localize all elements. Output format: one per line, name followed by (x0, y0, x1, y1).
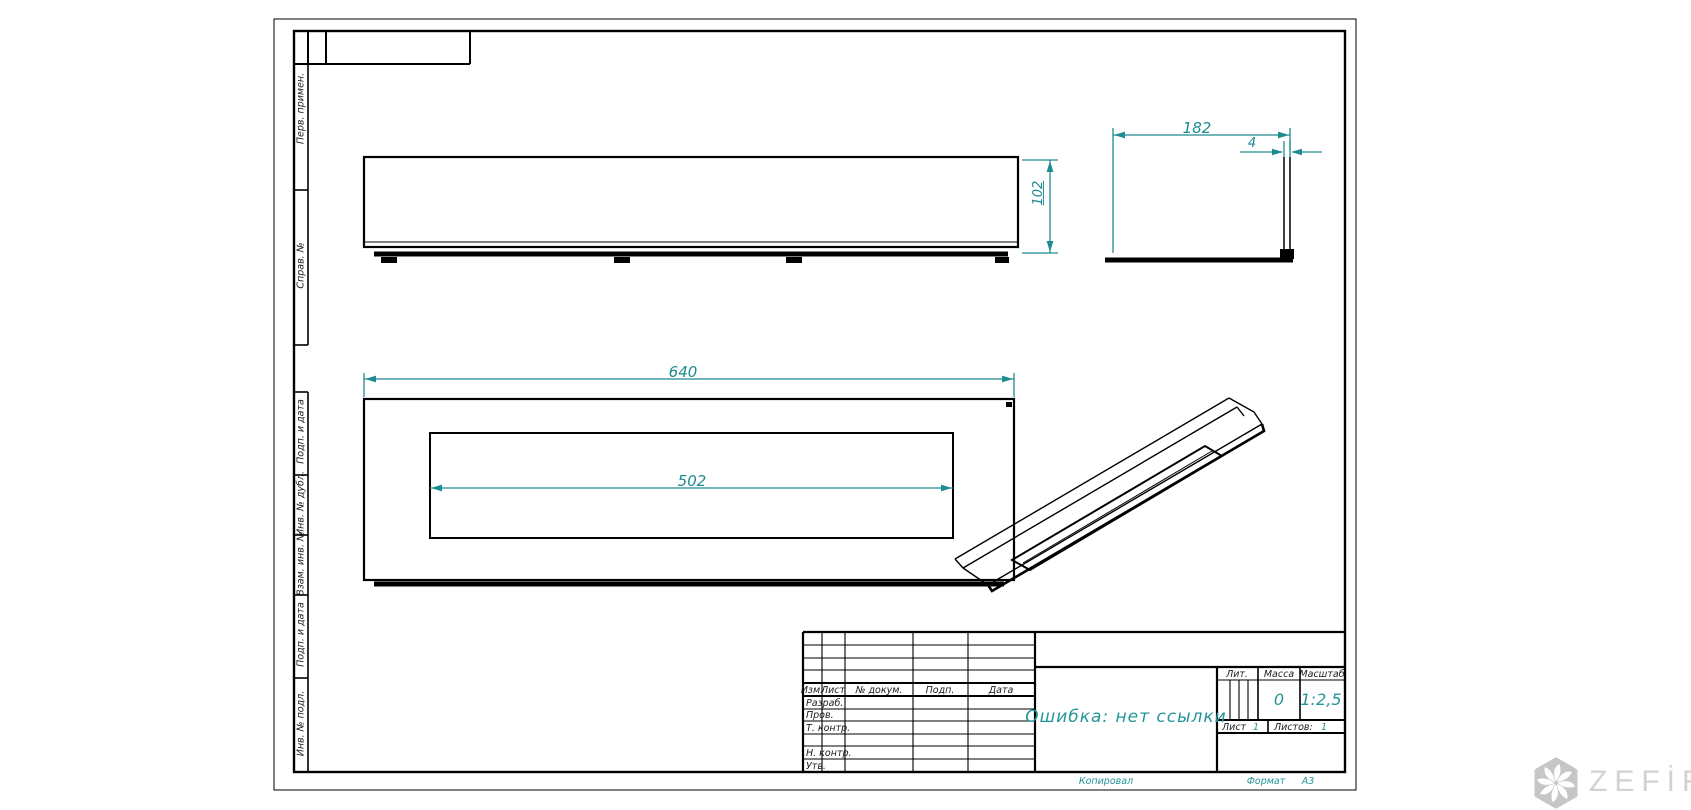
dim-text-502: 502 (678, 472, 707, 490)
tb-col-data: Дата (989, 685, 1014, 696)
format-value: А3 (1302, 776, 1315, 787)
tb-mass-label: Масса (1264, 669, 1294, 680)
format-label: Формат (1247, 776, 1286, 787)
tb-sheets-value: 1 (1321, 722, 1327, 733)
tb-lit-label: Лит. (1226, 669, 1248, 680)
dim-text-102: 102 (1031, 181, 1046, 206)
dim-text-4: 4 (1248, 136, 1256, 151)
tb-sheets-label: Листов: (1274, 722, 1313, 733)
tb-scale-value: 1:2,5 (1300, 690, 1341, 709)
drawing-frame (294, 31, 1345, 772)
tb-sheet-value: 1 (1253, 722, 1259, 733)
side-view (1105, 157, 1294, 260)
tb-row-tkontr: Т. контр. (806, 723, 850, 734)
document-name-error-text: Ошибка: нет ссылки (1025, 707, 1226, 727)
dimension-height-102 (1022, 160, 1058, 253)
corner-stamp-block (294, 31, 470, 64)
tb-col-izm: Изм. (801, 685, 823, 696)
margin-label-inv-podl: Инв. № подл. (296, 644, 307, 804)
drawing-sheet: Перв. примен. Справ. № Подп. и дата Инв.… (0, 0, 1691, 810)
dim-text-182: 182 (1183, 119, 1212, 137)
tb-row-prov: Пров. (806, 710, 834, 721)
tb-sheet-label: Лист (1222, 722, 1246, 733)
front-view (364, 157, 1018, 263)
tb-row-razrab: Разраб. (806, 698, 843, 709)
isometric-view (955, 398, 1264, 591)
margin-label-sprav-no: Справ. № (296, 186, 307, 346)
margin-label-perv-primen: Перв. примен. (296, 29, 307, 189)
drawing-linework (0, 0, 1691, 810)
plan-view (364, 399, 1014, 584)
kopiroval-label: Копировал (1079, 776, 1133, 787)
dim-text-640: 640 (669, 363, 698, 381)
tb-col-podp: Подп. (926, 685, 955, 696)
tb-row-utv: Утв. (806, 761, 826, 772)
tb-col-list: Лист (821, 685, 845, 696)
tb-row-nkontr: Н. контр. (806, 748, 852, 759)
tb-scale-label: Масштаб (1299, 669, 1344, 680)
dimension-depth-182 (1113, 128, 1290, 253)
zefire-logo-icon (1537, 760, 1576, 806)
title-block-lines (803, 632, 1345, 772)
zefire-watermark-text: ZEFİRE (1589, 765, 1691, 799)
tb-col-ndokum: № докум. (856, 685, 903, 696)
tb-mass-value: 0 (1274, 690, 1284, 709)
